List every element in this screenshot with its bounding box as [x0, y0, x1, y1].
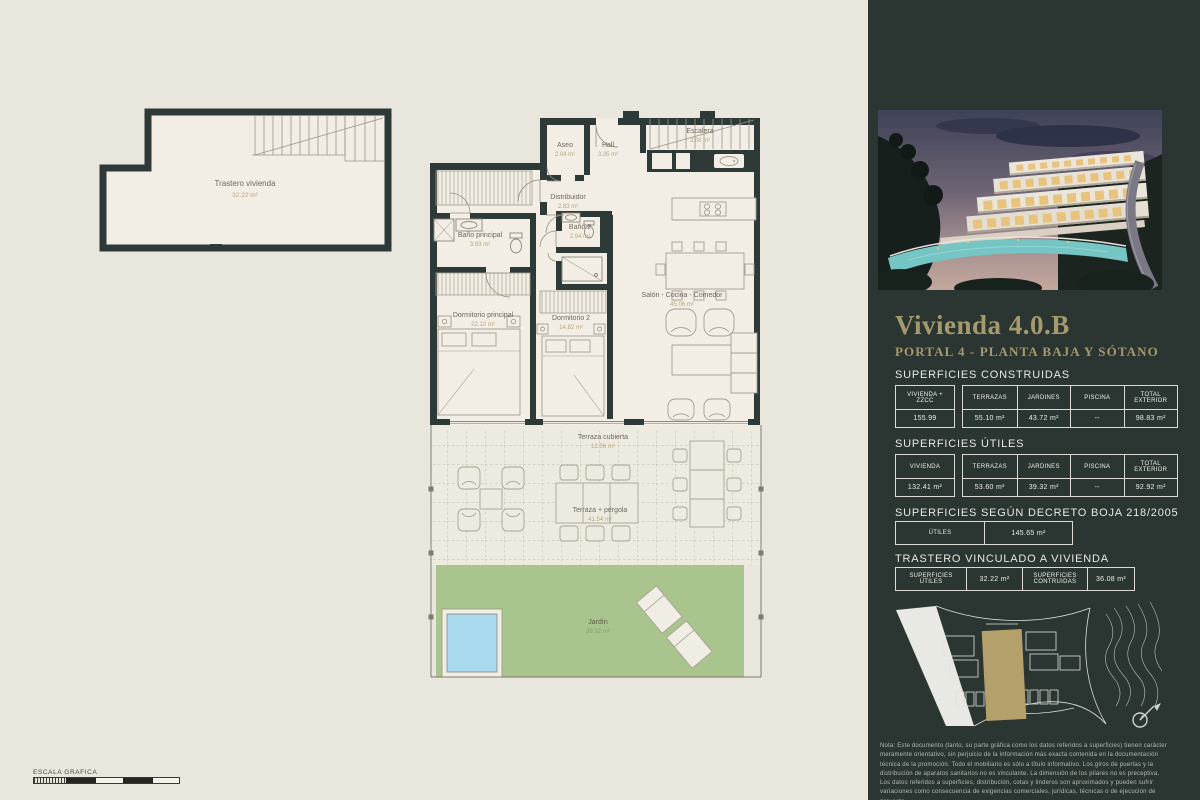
svg-text:45.06 m²: 45.06 m² — [670, 302, 694, 308]
col-value: -- — [1070, 410, 1124, 427]
scale-seg — [66, 778, 96, 783]
svg-text:39.32 m²: 39.32 m² — [586, 629, 610, 635]
col-value: 98.83 m² — [1124, 410, 1178, 427]
site-plan — [878, 598, 1162, 730]
col-header: TERRAZAS — [963, 386, 1017, 410]
table-cell-group: TERRAZAS JARDINES PISCINA TOTAL EXTERIOR… — [962, 385, 1178, 428]
scale-seg — [123, 778, 153, 783]
section-heading-decreto: SUPERFICIES SEGÚN DECRETO BOJA 218/2005 — [895, 507, 1178, 519]
svg-text:22.12 m²: 22.12 m² — [471, 322, 495, 328]
site-plan-contours — [1105, 602, 1162, 706]
col-value: 145.65 m² — [984, 522, 1072, 544]
scale-seg — [34, 778, 66, 783]
svg-text:Aseo: Aseo — [557, 142, 573, 149]
col-header: TOTAL EXTERIOR — [1124, 455, 1178, 479]
section-heading-trastero: TRASTERO VINCULADO A VIVIENDA — [895, 553, 1109, 565]
legal-disclaimer: Nota: Este documento (tanto, su parte gr… — [880, 742, 1168, 800]
section-heading-construidas: SUPERFICIES CONSTRUIDAS — [895, 369, 1070, 381]
col-value: 53.60 m² — [963, 479, 1017, 496]
col-value: -- — [1070, 479, 1124, 496]
site-plan-highlight-building — [982, 629, 1027, 721]
col-value: 55.10 m² — [963, 410, 1017, 427]
svg-text:Hall: Hall — [602, 142, 615, 149]
page-subtitle: PORTAL 4 - PLANTA BAJA Y SÓTANO — [895, 344, 1159, 360]
scale-seg — [96, 778, 123, 783]
trastero-label: Trastero vivienda — [214, 179, 276, 188]
bed-2-icon — [537, 324, 605, 416]
svg-text:Baño principal: Baño principal — [458, 232, 503, 239]
page-title: Vivienda 4.0.B — [895, 310, 1070, 341]
col-value: 43.72 m² — [1017, 410, 1071, 427]
wall-stub — [312, 109, 325, 115]
table-cell-group: TERRAZAS JARDINES PISCINA TOTAL EXTERIOR… — [962, 454, 1178, 497]
brochure-page: Trastero vivienda 32.22 m² — [0, 0, 1200, 800]
svg-text:Dormitorio 2: Dormitorio 2 — [552, 315, 590, 322]
svg-text:Distribuidor: Distribuidor — [550, 194, 586, 201]
col-header: PISCINA — [1070, 455, 1124, 479]
scale-bar: ESCALA GRAFICA — [33, 769, 180, 784]
col-value: 155.99 — [896, 410, 954, 427]
scale-seg — [153, 778, 179, 783]
table-utiles: VIVIENDA 132.41 m² TERRAZAS JARDINES PIS… — [895, 454, 1178, 497]
svg-text:12.06 m²: 12.06 m² — [591, 444, 615, 450]
col-value: 39.32 m² — [1017, 479, 1071, 496]
site-plan-wedge — [896, 606, 974, 726]
table-decreto: ÚTILES 145.65 m² — [895, 521, 1073, 545]
svg-text:Escalera: Escalera — [686, 128, 713, 135]
col-header: SUPERFICIES CONTRUIDAS — [1022, 568, 1087, 590]
col-value: 36.08 m² — [1087, 568, 1134, 590]
col-value: 132.41 m² — [896, 479, 954, 496]
svg-text:2.94 m²: 2.94 m² — [570, 234, 590, 240]
col-header: PISCINA — [1070, 386, 1124, 410]
terrace-dining-icon — [673, 441, 741, 527]
svg-text:Jardín: Jardín — [588, 619, 608, 626]
svg-text:41.54 m²: 41.54 m² — [588, 517, 612, 523]
col-header: TOTAL EXTERIOR — [1124, 386, 1178, 410]
table-construidas: VIVIENDA + ZZCC 155.99 TERRAZAS JARDINES… — [895, 385, 1178, 428]
pergola-table-icon — [556, 465, 638, 541]
col-value: 92.92 m² — [1124, 479, 1178, 496]
col-value: 32.22 m² — [966, 568, 1022, 590]
section-heading-utiles: SUPERFICIES ÚTILES — [895, 438, 1024, 450]
svg-text:Terraza + pérgola: Terraza + pérgola — [573, 507, 628, 514]
svg-text:14.82 m²: 14.82 m² — [559, 325, 583, 331]
table-cell-group: VIVIENDA + ZZCC 155.99 — [895, 385, 955, 428]
col-header: VIVIENDA + ZZCC — [896, 386, 954, 410]
trastero-floorplan: Trastero vivienda 32.22 m² — [95, 105, 395, 255]
trastero-area: 32.22 m² — [232, 192, 258, 199]
pool — [447, 614, 497, 672]
svg-text:Baño 2: Baño 2 — [569, 224, 591, 231]
main-floorplan: Aseo 2.04 m² Hall 3.35 m² Escalera 3.08 … — [428, 103, 768, 693]
svg-text:3.63 m²: 3.63 m² — [470, 242, 490, 248]
scale-bar-graphic — [33, 777, 180, 784]
col-header: JARDINES — [1017, 386, 1071, 410]
scale-label: ESCALA GRAFICA — [33, 769, 180, 776]
col-header: VIVIENDA — [896, 455, 954, 479]
svg-text:2.04 m²: 2.04 m² — [555, 152, 575, 158]
col-header: JARDINES — [1017, 455, 1071, 479]
compass-icon — [1130, 698, 1164, 730]
bed-principal-icon — [438, 316, 520, 415]
svg-text:Dormitorio principal: Dormitorio principal — [453, 312, 514, 319]
col-header: SUPERFICIES ÚTILES — [896, 568, 966, 590]
table-cell-group: VIVIENDA 132.41 m² — [895, 454, 955, 497]
kitchen-island-icon — [672, 198, 756, 220]
wall-stub — [210, 244, 222, 251]
table-trastero: SUPERFICIES ÚTILES 32.22 m² SUPERFICIES … — [895, 567, 1135, 591]
building-photo — [878, 110, 1162, 290]
svg-text:2.83 m²: 2.83 m² — [558, 204, 578, 210]
svg-text:3.08 m²: 3.08 m² — [690, 138, 710, 144]
col-header: TERRAZAS — [963, 455, 1017, 479]
info-sidebar: Vivienda 4.0.B PORTAL 4 - PLANTA BAJA Y … — [868, 0, 1200, 800]
svg-text:Terraza cubierta: Terraza cubierta — [578, 434, 628, 441]
svg-text:3.35 m²: 3.35 m² — [598, 152, 618, 158]
col-header: ÚTILES — [896, 522, 984, 544]
svg-text:Salón - Cocina - Comedor: Salón - Cocina - Comedor — [642, 292, 724, 299]
